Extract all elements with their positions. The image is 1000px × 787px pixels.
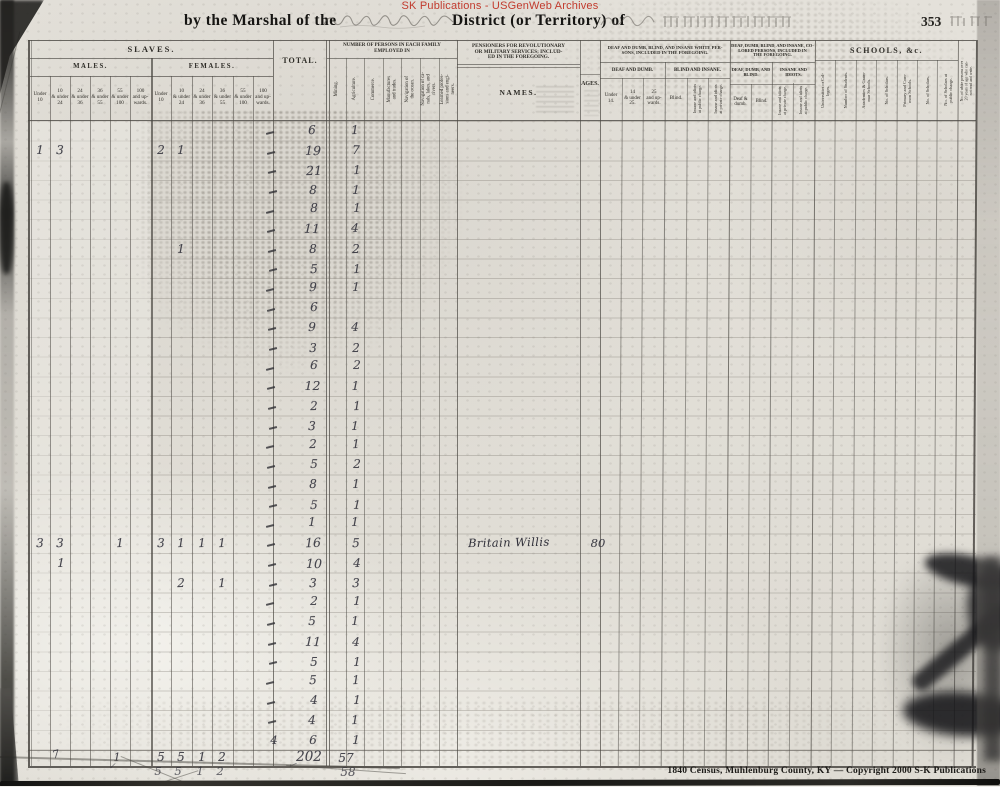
cell-value-total: 12 bbox=[296, 378, 330, 393]
table-rule-line bbox=[30, 58, 273, 59]
cell-value-agriculture: 1 bbox=[339, 398, 373, 413]
cell-value-m_55_100: 1 bbox=[103, 535, 137, 550]
cell-value-agriculture: 1 bbox=[338, 419, 372, 433]
cell-value-total: 6 bbox=[296, 300, 330, 315]
label-insane_labels-1: Insane and idiots at public charge. bbox=[793, 82, 815, 118]
label-labels-0: Universities or Col- leges. bbox=[815, 61, 835, 119]
cell-value-total: 2 bbox=[296, 398, 330, 413]
pensioner-age: 80 bbox=[581, 536, 615, 550]
label-white_impaired-deaf_dumb_title: DEAF AND DUMB. bbox=[600, 65, 665, 76]
page-corner-shadow bbox=[0, 688, 19, 787]
label-deaf_dumb_labels-2: 25 and up- wards. bbox=[643, 78, 665, 119]
pencil-recount: 2 bbox=[203, 764, 237, 778]
cell-value-total: 5 bbox=[295, 614, 329, 628]
label-insane_labels-1: Insane and idiots at private charge. bbox=[708, 79, 730, 119]
table-column-line bbox=[50, 76, 51, 766]
cell-value-total: 2 bbox=[296, 437, 330, 452]
label-male_labels-4: 55 & under 100 bbox=[110, 77, 130, 119]
cell-value-total: 19 bbox=[296, 142, 330, 157]
label-labels-0: Mining. bbox=[327, 59, 346, 119]
cell-value-agriculture: 1 bbox=[339, 201, 373, 215]
label-white_impaired-title: DEAF AND DUMB, BLIND, AND INSANE WHITE P… bbox=[601, 41, 729, 59]
label-schools-title: SCHOOLS, &c. bbox=[815, 44, 958, 58]
cell-value-agriculture: 1 bbox=[340, 261, 374, 276]
pensioner-name: Britain Willis bbox=[468, 534, 596, 550]
cell-value-total: 16 bbox=[296, 535, 330, 551]
cell-value-agriculture: 5 bbox=[339, 535, 373, 550]
cell-value-agriculture: 1 bbox=[338, 614, 372, 628]
cell-value-agriculture: 1 bbox=[338, 477, 372, 491]
cell-value-total: 8 bbox=[295, 183, 329, 198]
table-rule-line bbox=[600, 62, 730, 63]
cell-value-agriculture: 2 bbox=[339, 242, 373, 256]
cell-value-agriculture: 2 bbox=[340, 358, 374, 373]
cell-value-agriculture: 1 bbox=[339, 437, 373, 452]
ink-bleed-through bbox=[584, 90, 599, 116]
label-labels-2: Academies & Gram- mar Schools. bbox=[856, 61, 876, 119]
label-slaves-females_title: FEMALES. bbox=[151, 60, 273, 73]
cell-value-f_10_24: 2 bbox=[163, 576, 197, 591]
table-column-line bbox=[253, 76, 254, 766]
cell-value-agriculture: 2 bbox=[339, 340, 373, 354]
cell-value-agriculture: 1 bbox=[339, 693, 373, 707]
cell-value-agriculture: 1 bbox=[340, 163, 374, 178]
label-slaves-title: SLAVES. bbox=[30, 42, 273, 57]
cell-value-total: 6 bbox=[297, 358, 331, 373]
cell-value-agriculture: 1 bbox=[339, 379, 373, 393]
label-deaf_dumb_labels-1: 14 & under 25. bbox=[622, 78, 643, 119]
table-column-line bbox=[192, 76, 193, 766]
cell-value-total: 9 bbox=[295, 280, 329, 294]
cell-value-total: 11 bbox=[296, 634, 330, 650]
cell-value-agriculture: 1 bbox=[338, 183, 372, 198]
label-labels-5: Navigation of ca- nals, lakes, and river… bbox=[420, 59, 439, 119]
cell-value-agriculture: 3 bbox=[338, 576, 372, 591]
table-column-line bbox=[171, 76, 172, 766]
table-rule-line bbox=[28, 120, 976, 121]
label-pensioners-names_label: NAMES. bbox=[457, 86, 580, 100]
label-colored_impaired-blind_label: Blind. bbox=[751, 85, 772, 119]
label-female_labels-4: 55 & under 100 bbox=[233, 77, 253, 119]
footer-credit: 1840 Census, Muhlenburg County, KY — Cop… bbox=[667, 766, 986, 776]
label-insane_labels-0: Insane and idiots at private charge. bbox=[772, 82, 793, 118]
cell-value-total: 5 bbox=[297, 457, 331, 472]
cell-value-agriculture: 2 bbox=[340, 457, 374, 472]
table-rule-line bbox=[457, 67, 580, 68]
agriculture-total: 57 bbox=[329, 751, 363, 765]
cell-value-total: 6 bbox=[295, 122, 329, 137]
cell-value-agriculture: 4 bbox=[340, 556, 374, 570]
cell-value-total: 8 bbox=[295, 477, 329, 491]
cell-value-total: 10 bbox=[297, 555, 331, 570]
label-labels-4: Primary and Com- mon Schools. bbox=[897, 61, 917, 119]
label-labels-1: Agriculture. bbox=[346, 59, 365, 119]
cell-value-total: 3 bbox=[295, 576, 329, 591]
mirrored-bleed-text bbox=[597, 10, 797, 32]
table-rule-line bbox=[580, 74, 600, 75]
cell-value-agriculture: 1 bbox=[339, 594, 373, 609]
table-column-line bbox=[90, 76, 91, 766]
table-column-line bbox=[212, 76, 213, 766]
cell-value-f_36_55: 1 bbox=[204, 576, 238, 591]
cell-value-agriculture: 7 bbox=[339, 143, 373, 157]
label-labels-3: No. of Scholars. bbox=[876, 61, 896, 119]
label-white_impaired-blind_label: Blind. bbox=[665, 80, 687, 118]
table-column-line bbox=[233, 76, 234, 766]
cell-value-total: 1 bbox=[295, 515, 329, 529]
label-pensioners-ages_label: AGES. bbox=[580, 78, 600, 90]
illegible-handwriting-district-name bbox=[320, 11, 460, 31]
cell-value-total: 21 bbox=[297, 162, 331, 178]
cell-value-total: 8 bbox=[296, 201, 330, 215]
table-column-line bbox=[580, 40, 581, 766]
cell-value-total: 4 bbox=[296, 693, 330, 707]
cell-value-f_10_24: 1 bbox=[164, 242, 198, 256]
cell-value-agriculture: 1 bbox=[340, 655, 374, 669]
table-column-line bbox=[130, 76, 131, 766]
tally-count: 4 bbox=[257, 733, 291, 747]
label-colored_impaired-insane_idiots_title: INSANE AND IDIOTS. bbox=[772, 63, 815, 82]
cell-value-agriculture: 1 bbox=[339, 497, 373, 512]
census-scan-page: SK Publications - USGenWeb Archives by t… bbox=[0, 0, 1000, 787]
table-column-line bbox=[70, 76, 71, 766]
cell-value-agriculture: 4 bbox=[338, 320, 372, 335]
header-text-marshal: by the Marshal of the bbox=[184, 12, 337, 30]
table-column-line bbox=[600, 40, 601, 766]
label-labels-2: Commerce. bbox=[364, 59, 383, 119]
cell-value-total: 8 bbox=[296, 242, 330, 256]
cell-value-total: 6 bbox=[296, 733, 330, 748]
cell-value-f_10_24: 1 bbox=[164, 143, 198, 157]
cell-value-agriculture: 1 bbox=[338, 515, 372, 529]
label-labels-5: No. of Scholars. bbox=[917, 61, 937, 119]
watermark: SK Publications - USGenWeb Archives bbox=[0, 0, 1000, 12]
label-male_labels-2: 24 & under 36 bbox=[70, 77, 90, 119]
label-labels-3: Manufactures and trades. bbox=[383, 59, 402, 119]
page-edge-left bbox=[0, 0, 14, 787]
table-column-line bbox=[401, 58, 402, 766]
pencil-check-mark: ✓ bbox=[95, 762, 129, 772]
label-male_labels-5: 100 and up- wards. bbox=[130, 77, 151, 119]
label-colored_impaired-title: DEAF, DUMB, BLIND, AND INSANE, CO- LORED… bbox=[730, 41, 815, 61]
label-female_labels-1: 10 & under 24 bbox=[171, 77, 192, 119]
cell-value-total: 2 bbox=[296, 594, 330, 609]
label-colored_impaired-deaf_dumb_blind_title: DEAF, DUMB, AND BLIND. bbox=[730, 63, 772, 82]
label-female_labels-2: 24 & under 36 bbox=[192, 77, 212, 119]
cell-value-agriculture: 4 bbox=[339, 634, 373, 649]
table-column-line bbox=[420, 58, 421, 766]
cell-value-m_10_24: 3 bbox=[43, 143, 77, 157]
cell-value-total: 5 bbox=[295, 672, 329, 687]
label-insane_labels-0: Insane and idiots at public charge. bbox=[687, 79, 708, 119]
label-table-total_label: TOTAL. bbox=[273, 54, 327, 68]
table-column-line bbox=[151, 58, 153, 766]
label-pensioners-title: PENSIONERS FOR REVOLUTIONARY OR MILITARY… bbox=[458, 41, 579, 64]
table-column-line bbox=[110, 76, 111, 766]
table-column-line bbox=[439, 58, 440, 766]
cell-value-agriculture: 1 bbox=[338, 122, 372, 137]
page-edge-shadow bbox=[0, 182, 13, 274]
cell-value-total: 5 bbox=[296, 497, 330, 512]
cell-value-total: 3 bbox=[296, 340, 330, 354]
label-male_labels-3: 36 & under 55 bbox=[90, 77, 110, 119]
label-slaves-males_title: MALES. bbox=[30, 60, 151, 73]
label-labels-1: Number of Students. bbox=[835, 61, 855, 119]
table-column-line bbox=[383, 58, 384, 766]
cell-value-f_36_55: 1 bbox=[205, 535, 239, 550]
page-number: 353 bbox=[921, 14, 941, 30]
label-employed-title: NUMBER OF PERSONS IN EACH FAMILY EMPLOYE… bbox=[328, 41, 456, 57]
label-male_labels-1: 10 & under 24 bbox=[50, 77, 70, 119]
cell-value-total: 11 bbox=[295, 221, 329, 237]
cell-value-total: 9 bbox=[295, 320, 329, 335]
page-edge-right bbox=[977, 0, 1000, 787]
cell-value-m_10_24: 1 bbox=[44, 556, 78, 570]
label-labels-4: Navigation of the ocean. bbox=[401, 59, 420, 119]
cell-value-agriculture: 1 bbox=[338, 713, 372, 728]
cell-value-total: 4 bbox=[295, 713, 329, 728]
table-column-line bbox=[457, 40, 458, 766]
label-table-literacy_label: No. of white persons over 20 years of ag… bbox=[958, 43, 976, 119]
table-column-line bbox=[273, 40, 274, 766]
label-white_impaired-blind_insane_title: BLIND AND INSANE. bbox=[665, 65, 730, 76]
label-female_labels-3: 36 & under 55 bbox=[212, 77, 233, 119]
cell-value-total: 5 bbox=[297, 261, 331, 276]
cell-value-agriculture: 4 bbox=[338, 221, 372, 236]
label-female_labels-5: 100 and up- wards. bbox=[253, 77, 273, 119]
cell-value-agriculture: 1 bbox=[338, 672, 372, 687]
cell-value-m_10_24: 3 bbox=[43, 535, 77, 550]
cell-value-agriculture: 1 bbox=[338, 280, 372, 294]
label-labels-6: No. of Scholars at public charge. bbox=[937, 61, 958, 119]
label-male_labels-0: Under 10 bbox=[30, 77, 50, 119]
cell-value-total: 3 bbox=[295, 419, 329, 433]
table-rule-line bbox=[457, 64, 580, 65]
label-deaf_dumb_labels-0: Under 14. bbox=[600, 78, 622, 119]
label-colored_impaired-deaf_dumb_label: Deaf & dumb. bbox=[730, 85, 751, 119]
cell-value-total: 5 bbox=[297, 655, 331, 669]
label-labels-6: Learned profes- sions and engi- neers. bbox=[439, 59, 457, 119]
label-female_labels-0: Under 10 bbox=[151, 77, 171, 119]
cell-value-agriculture: 1 bbox=[339, 733, 373, 748]
